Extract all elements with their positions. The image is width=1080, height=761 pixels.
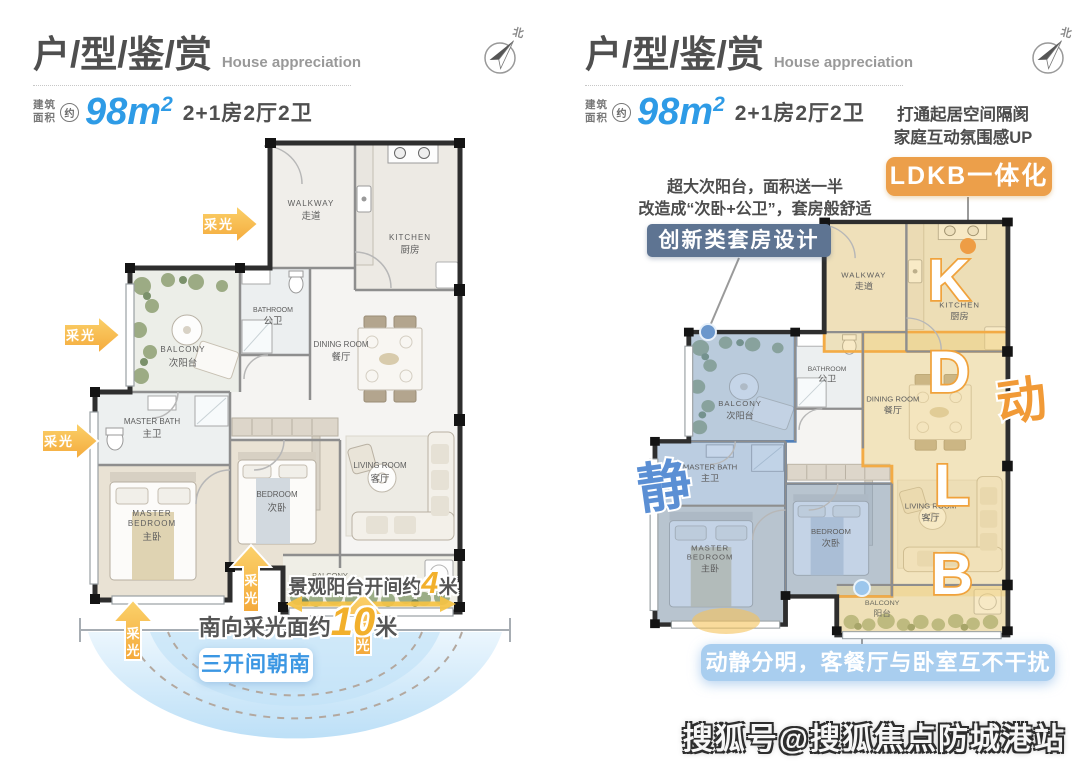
panel-original-plan: 户/型/鉴/赏House appreciation 建筑面积 约 98m2 2+… bbox=[0, 0, 540, 761]
page-subtitle: House appreciation bbox=[222, 54, 361, 71]
compass-icon: 北 bbox=[476, 20, 528, 80]
watermark: 搜狐号@搜狐焦点防城港站 bbox=[683, 714, 1066, 758]
compass-north-label: 北 bbox=[511, 24, 525, 40]
compass-north-label: 北 bbox=[1059, 24, 1073, 40]
ldkb-badge: LDKB一体化 bbox=[886, 157, 1052, 196]
area-value: 98m2 bbox=[85, 93, 173, 131]
bottom-dot bbox=[854, 580, 870, 596]
suite-badge: 创新类套房设计 bbox=[647, 224, 831, 257]
svg-text:采: 采 bbox=[243, 573, 258, 588]
zone-letter-b: B bbox=[931, 542, 973, 607]
suite-note: 超大次阳台，面积送一半改造成“次卧+公卫”，套房般舒适 bbox=[628, 177, 882, 221]
panel-zoned-plan: 户/型/鉴/赏House appreciation 建筑面积 约 98m2 2+… bbox=[540, 0, 1080, 761]
page-title: 户/型/鉴/赏 bbox=[585, 34, 764, 75]
house-plan-poster: WALKWAY 走道 KITCHEN 厨房 BATHROOM 公卫 BALCON… bbox=[0, 0, 1080, 761]
layout-spec: 2+1房2厅2卫 bbox=[183, 97, 313, 127]
zone-active-label: 动 bbox=[993, 370, 1050, 432]
south-width-note: 南向采光面约10米 bbox=[118, 600, 478, 645]
suite-connector bbox=[710, 258, 739, 326]
zoning-badge: 动静分明，客餐厅与卧室互不干扰 bbox=[701, 644, 1055, 681]
svg-text:采光: 采光 bbox=[203, 217, 234, 232]
highlight-ellipse bbox=[692, 608, 760, 634]
zone-quiet-label: 静 bbox=[634, 454, 696, 521]
balcony-width-note: 景观阳台开间约4米 bbox=[278, 565, 468, 601]
page-title: 户/型/鉴/赏 bbox=[33, 34, 212, 75]
svg-text:光: 光 bbox=[125, 643, 139, 658]
area-value: 98m2 bbox=[637, 93, 725, 131]
approx-circle: 约 bbox=[60, 103, 79, 122]
approx-circle: 约 bbox=[612, 103, 631, 122]
compass-icon: 北 bbox=[1024, 20, 1076, 80]
suite-dot bbox=[700, 324, 716, 340]
zone-letter-k: K bbox=[928, 248, 970, 313]
page-subtitle: House appreciation bbox=[774, 54, 913, 71]
orientation-badge: 三开间朝南 bbox=[199, 648, 313, 682]
zone-letter-l: L bbox=[934, 453, 969, 518]
svg-text:采光: 采光 bbox=[43, 434, 74, 449]
ldkb-note: 打通起居空间隔阂家庭互动氛围感UP bbox=[840, 104, 1080, 150]
zone-letter-d: D bbox=[928, 340, 970, 405]
area-label: 建筑面积 bbox=[33, 99, 56, 124]
area-label: 建筑面积 bbox=[585, 99, 608, 124]
svg-text:采光: 采光 bbox=[65, 328, 96, 343]
header-left: 户/型/鉴/赏House appreciation 建筑面积 约 98m2 2+… bbox=[33, 24, 351, 131]
